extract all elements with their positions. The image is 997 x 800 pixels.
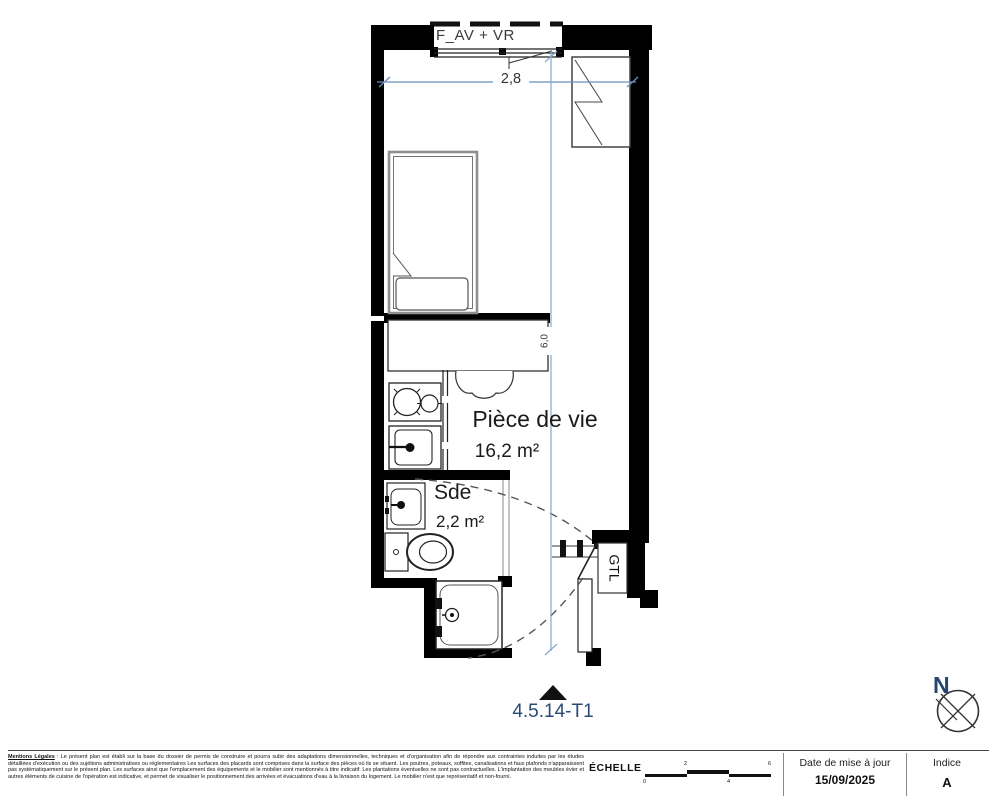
- window: [434, 49, 562, 57]
- scale-bar-segment: [645, 774, 687, 778]
- update-date-value: 15/09/2025: [788, 773, 902, 787]
- scale-tick: 6: [768, 761, 771, 767]
- scale-tick: 4: [727, 779, 730, 785]
- scale-bar-segment: [687, 770, 729, 774]
- entrance-door: [578, 543, 597, 652]
- cooktop: [389, 383, 442, 421]
- floor-plan-sheet: GTL 2,8 6,0 F_AV + VR Pièce de vie 16,2 …: [0, 0, 997, 800]
- index-label: Indice: [908, 757, 986, 769]
- scale-bar-segment: [729, 774, 771, 778]
- dimension-width-label: 2,8: [501, 71, 521, 87]
- toilet: [385, 533, 453, 571]
- window-opening-leader: [509, 51, 552, 69]
- window-label: F_AV + VR: [436, 27, 515, 44]
- wardrobe: [572, 57, 630, 147]
- wall-joint: [371, 316, 384, 321]
- footer-separator: [906, 753, 907, 796]
- bathroom-area: 2,2 m²: [436, 512, 484, 532]
- dimension-height: 6,0: [539, 50, 557, 655]
- update-date-label: Date de mise à jour: [788, 757, 902, 769]
- north-label: N: [933, 672, 950, 699]
- footer-separator: [783, 753, 784, 796]
- footer-divider: [8, 750, 989, 751]
- index-value: A: [908, 775, 986, 790]
- scale-tick: 0: [643, 779, 646, 785]
- unit-label: 4.5.14-T1: [493, 701, 613, 723]
- kitchen-sink: [389, 426, 441, 469]
- bed: [389, 152, 477, 313]
- floor-plan-drawing: GTL 2,8 6,0: [0, 0, 997, 800]
- living-room-area: 16,2 m²: [452, 441, 562, 463]
- partition-joint: [441, 442, 450, 449]
- scale-label: ÉCHELLE: [589, 762, 642, 774]
- chair: [456, 371, 514, 398]
- legal-mentions-body: : Le présent plan est établi sur la base…: [8, 754, 584, 780]
- dimension-height-label: 6,0: [540, 334, 551, 348]
- legal-mentions-title: Mentions Légales: [8, 754, 55, 760]
- gtl-label: GTL: [606, 554, 622, 581]
- kitchen-partition: [443, 370, 448, 470]
- entrance-marker-triangle: [539, 685, 567, 700]
- table: [388, 320, 548, 371]
- legal-mentions: Mentions Légales : Le présent plan est é…: [8, 754, 584, 780]
- living-room-name: Pièce de vie: [455, 406, 615, 433]
- gtl-cabinet: GTL: [598, 543, 627, 593]
- washbasin: [385, 483, 425, 529]
- partition-joint: [441, 396, 450, 403]
- bathroom-name: Sde: [434, 481, 471, 505]
- bathroom-door: [552, 540, 599, 557]
- shower: [435, 581, 502, 649]
- scale-tick: 2: [684, 761, 687, 767]
